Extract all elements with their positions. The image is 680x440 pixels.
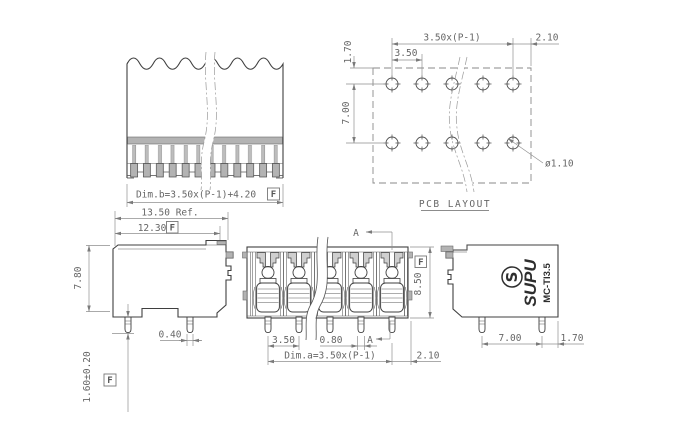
view-side-right: S SUPU MC-TI3.5 7.00 1.70 xyxy=(441,245,584,348)
datum-flag-f: F xyxy=(268,188,280,200)
view-front: A A F 8.50 3.50 0.80 Dim.a=3.50x(P-1) 2.… xyxy=(243,228,442,365)
pcb-pitch-total-label: 3.50x(P-1) xyxy=(423,33,480,44)
model-label: MC-TI3.5 xyxy=(542,262,553,302)
technical-drawing-canvas: Dim.b=3.50x(P-1)+4.20 F 3.50x(P-1) 2.10 … xyxy=(0,0,680,440)
view-side-left: 13.50 Ref. 12.30 F 7.80 0.40 1.60±0.20 F xyxy=(73,208,233,413)
dim-b-label: Dim.b=3.50x(P-1)+4.20 xyxy=(136,190,256,201)
solder-pin xyxy=(125,317,131,333)
pcb-layout-title: PCB LAYOUT xyxy=(419,199,491,210)
solder-pin xyxy=(187,317,193,333)
flag-letter: F xyxy=(170,223,175,233)
datum-flag-f: F xyxy=(104,374,116,386)
dim-a-label: Dim.a=3.50x(P-1) xyxy=(284,351,376,362)
front-pitch-label: 3.50 xyxy=(272,335,295,346)
pcb-row-offset-label: 1.70 xyxy=(343,40,354,63)
front-end-margin-label: 2.10 xyxy=(417,351,440,362)
body-width-label: 12.30 xyxy=(138,223,167,234)
flag-letter: F xyxy=(418,258,423,268)
pin-length-label: 1.60±0.20 xyxy=(82,351,93,403)
solder-pin xyxy=(479,317,485,333)
view-broken-front-top: Dim.b=3.50x(P-1)+4.20 F xyxy=(127,52,283,207)
solder-pin xyxy=(539,317,545,333)
supu-logo-icon: S xyxy=(502,267,522,287)
pin-span-label: 7.00 xyxy=(499,333,522,344)
front-pin-width-label: 0.80 xyxy=(320,335,343,346)
pcb-pitch-label: 3.50 xyxy=(395,48,418,59)
section-marker-bottom: A xyxy=(367,321,390,346)
datum-flag-f: F xyxy=(415,256,427,268)
pcb-layout-view: 3.50x(P-1) 2.10 3.50 1.70 7.00 ø1.10 PCB… xyxy=(341,33,574,211)
pcb-hole-diameter-label: ø1.10 xyxy=(545,159,574,170)
front-height-label: 8.50 xyxy=(413,272,424,295)
pcb-end-margin-label: 2.10 xyxy=(536,33,559,44)
ref-width-label: 13.50 Ref. xyxy=(141,208,198,219)
pin-width-label: 0.40 xyxy=(159,330,182,341)
flag-letter: F xyxy=(107,376,112,386)
drawing-sheet: Dim.b=3.50x(P-1)+4.20 F 3.50x(P-1) 2.10 … xyxy=(0,0,680,440)
brand-label: SUPU xyxy=(521,259,540,307)
logo-letter: S xyxy=(503,272,521,283)
section-label: A xyxy=(353,228,359,239)
height-label: 7.80 xyxy=(73,266,84,289)
flag-letter: F xyxy=(271,190,276,200)
section-label: A xyxy=(367,335,373,346)
terminal-poles xyxy=(253,252,408,333)
pcb-row-spacing-label: 7.00 xyxy=(341,101,352,124)
datum-flag-f: F xyxy=(167,222,179,234)
right-end-margin-label: 1.70 xyxy=(561,333,584,344)
